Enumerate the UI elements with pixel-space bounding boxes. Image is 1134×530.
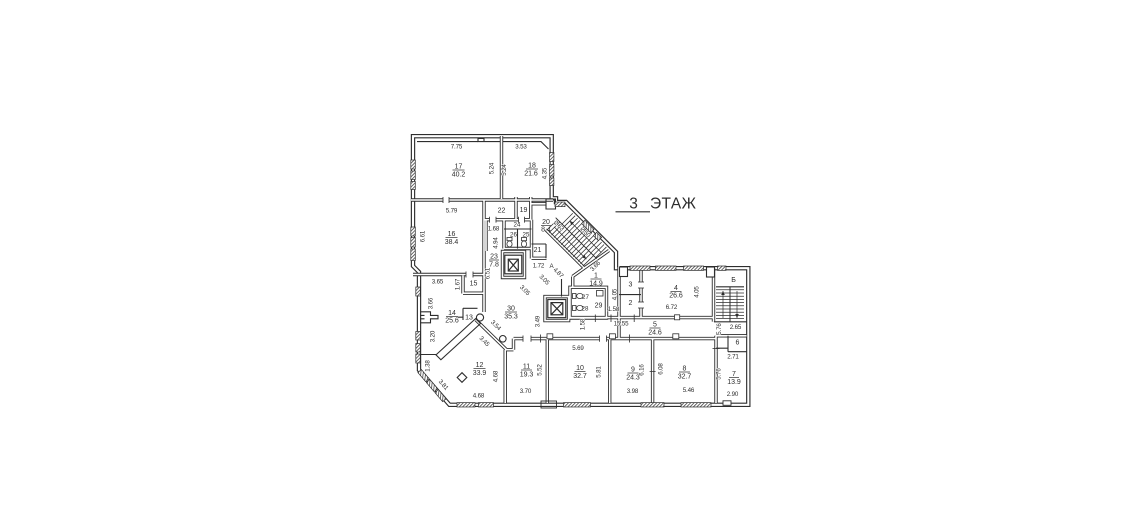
svg-text:25.6: 25.6 [445, 318, 459, 325]
svg-text:4.05: 4.05 [694, 286, 701, 298]
svg-text:3.66: 3.66 [428, 297, 435, 309]
svg-text:6.72: 6.72 [666, 304, 678, 311]
svg-text:1.58: 1.58 [608, 306, 620, 313]
svg-text:35.3: 35.3 [504, 314, 518, 321]
svg-text:2.63: 2.63 [552, 219, 566, 233]
svg-text:5.79: 5.79 [446, 208, 458, 215]
svg-text:21: 21 [534, 247, 542, 254]
svg-text:13: 13 [465, 315, 473, 322]
svg-text:3.45: 3.45 [478, 335, 492, 349]
svg-text:24.6: 24.6 [648, 330, 662, 337]
svg-text:19.3: 19.3 [520, 372, 534, 379]
svg-text:26: 26 [510, 232, 517, 239]
svg-text:17: 17 [455, 164, 463, 171]
svg-text:7.75: 7.75 [451, 144, 463, 151]
svg-text:4: 4 [674, 285, 678, 292]
svg-text:7: 7 [732, 371, 736, 378]
svg-text:Б: Б [731, 277, 736, 284]
svg-text:32.7: 32.7 [678, 374, 692, 381]
svg-text:5.69: 5.69 [572, 345, 584, 352]
svg-text:2.71: 2.71 [727, 354, 739, 361]
svg-text:40.2: 40.2 [452, 172, 466, 179]
svg-text:28: 28 [582, 306, 589, 313]
svg-text:30: 30 [507, 306, 515, 313]
svg-text:21.6: 21.6 [524, 171, 538, 178]
svg-text:14: 14 [448, 310, 456, 317]
svg-text:13.9: 13.9 [727, 379, 741, 386]
svg-text:3.65: 3.65 [432, 279, 444, 286]
svg-text:3.49: 3.49 [535, 315, 542, 327]
svg-text:5.81: 5.81 [596, 366, 603, 378]
svg-text:26.6: 26.6 [669, 293, 683, 300]
svg-text:5.76: 5.76 [716, 368, 723, 380]
svg-text:14.9: 14.9 [589, 281, 603, 288]
svg-text:25: 25 [523, 232, 530, 239]
svg-text:10: 10 [576, 365, 584, 372]
svg-text:24: 24 [514, 222, 521, 229]
svg-text:11: 11 [523, 364, 530, 371]
svg-text:8: 8 [683, 366, 687, 373]
svg-text:33.9: 33.9 [473, 370, 487, 377]
svg-text:19: 19 [520, 207, 528, 214]
svg-text:3.53: 3.53 [515, 144, 527, 151]
svg-text:15.55: 15.55 [614, 321, 629, 328]
svg-text:3.54: 3.54 [489, 319, 503, 333]
svg-text:3.05: 3.05 [518, 284, 532, 298]
svg-text:6.61: 6.61 [420, 230, 427, 242]
svg-text:15: 15 [470, 281, 478, 288]
svg-text:18: 18 [528, 163, 536, 170]
svg-text:1: 1 [594, 273, 598, 280]
svg-text:16: 16 [448, 231, 456, 238]
svg-text:7.8: 7.8 [489, 262, 499, 269]
svg-text:6.51: 6.51 [485, 267, 492, 279]
svg-text:23: 23 [490, 254, 498, 261]
svg-text:1.58: 1.58 [580, 318, 587, 330]
svg-text:20: 20 [542, 219, 550, 226]
svg-text:1.68: 1.68 [488, 226, 500, 233]
svg-text:12: 12 [476, 362, 484, 369]
svg-text:5.46: 5.46 [683, 387, 695, 394]
svg-text:8.4: 8.4 [541, 227, 551, 234]
svg-text:32.7: 32.7 [573, 373, 587, 380]
svg-text:5.76: 5.76 [716, 323, 723, 335]
svg-text:6: 6 [736, 340, 740, 347]
svg-text:1.67: 1.67 [455, 278, 462, 290]
svg-text:5.24: 5.24 [489, 162, 496, 174]
svg-text:3: 3 [629, 196, 638, 213]
svg-text:4.68: 4.68 [493, 370, 500, 382]
svg-text:4.05: 4.05 [612, 288, 619, 300]
svg-text:5.24: 5.24 [501, 164, 508, 176]
svg-text:4.35: 4.35 [542, 167, 549, 179]
svg-text:3.20: 3.20 [430, 330, 437, 342]
svg-text:4.94: 4.94 [493, 237, 500, 249]
svg-text:2.65: 2.65 [730, 324, 742, 331]
svg-text:3.98: 3.98 [627, 388, 639, 395]
svg-text:6.08: 6.08 [658, 363, 665, 375]
svg-text:5: 5 [653, 322, 657, 329]
svg-text:1.72: 1.72 [533, 263, 545, 270]
svg-text:29: 29 [595, 303, 603, 310]
svg-text:4.87: 4.87 [552, 266, 566, 280]
svg-text:6.16: 6.16 [639, 364, 646, 376]
svg-text:5.52: 5.52 [537, 364, 544, 376]
svg-text:27: 27 [582, 294, 589, 301]
svg-text:1.38: 1.38 [425, 360, 432, 372]
svg-text:3.70: 3.70 [520, 388, 532, 395]
svg-text:ЭТАЖ: ЭТАЖ [650, 196, 697, 213]
svg-text:38.4: 38.4 [445, 239, 459, 246]
svg-text:2: 2 [629, 300, 633, 307]
svg-text:9: 9 [631, 367, 635, 374]
svg-text:22: 22 [498, 208, 506, 215]
svg-text:3.05: 3.05 [538, 273, 552, 287]
svg-text:4.68: 4.68 [473, 393, 485, 400]
svg-text:2.90: 2.90 [727, 391, 739, 398]
svg-text:3: 3 [629, 282, 633, 289]
